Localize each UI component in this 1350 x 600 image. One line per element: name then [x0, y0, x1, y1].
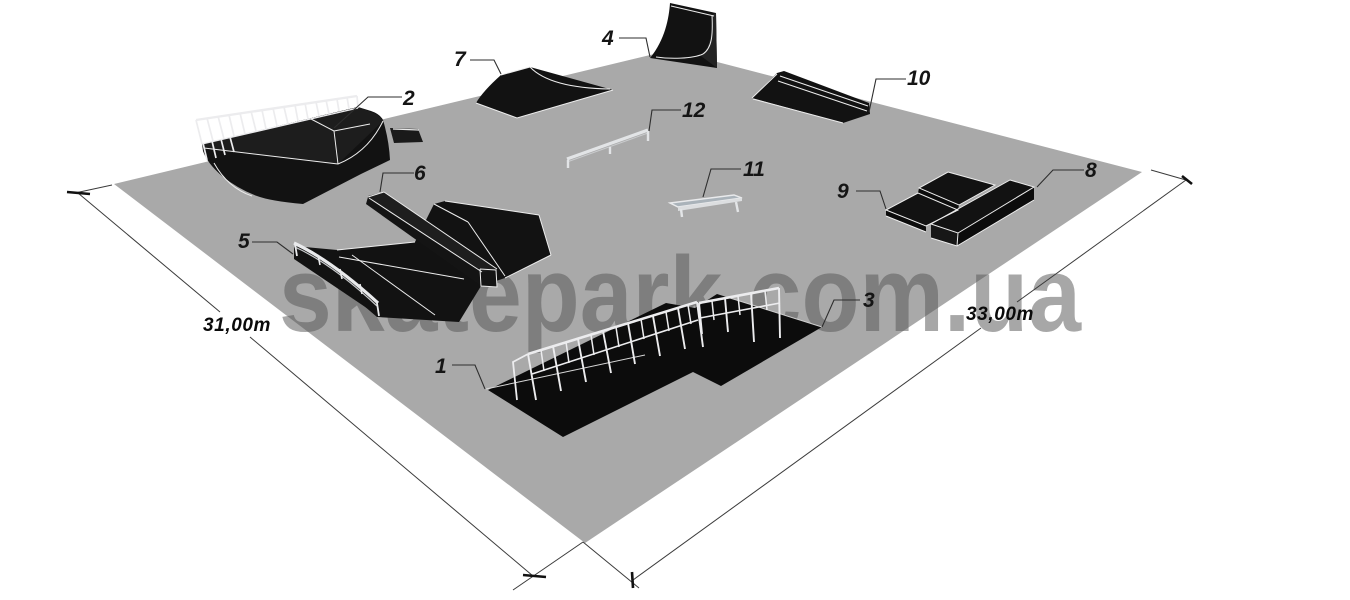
svg-text:9: 9 — [837, 180, 849, 203]
svg-text:1: 1 — [435, 355, 447, 378]
svg-text:8: 8 — [1085, 159, 1097, 182]
svg-text:3: 3 — [863, 289, 875, 312]
svg-text:10: 10 — [907, 67, 931, 90]
svg-text:2: 2 — [402, 87, 415, 110]
svg-text:33,00m: 33,00m — [966, 304, 1034, 325]
svg-text:7: 7 — [454, 48, 467, 71]
svg-text:11: 11 — [743, 158, 765, 181]
svg-text:12: 12 — [682, 99, 706, 122]
svg-text:5: 5 — [238, 230, 250, 253]
svg-text:4: 4 — [601, 27, 614, 50]
svg-text:31,00m: 31,00m — [203, 315, 271, 336]
svg-text:6: 6 — [414, 162, 426, 185]
